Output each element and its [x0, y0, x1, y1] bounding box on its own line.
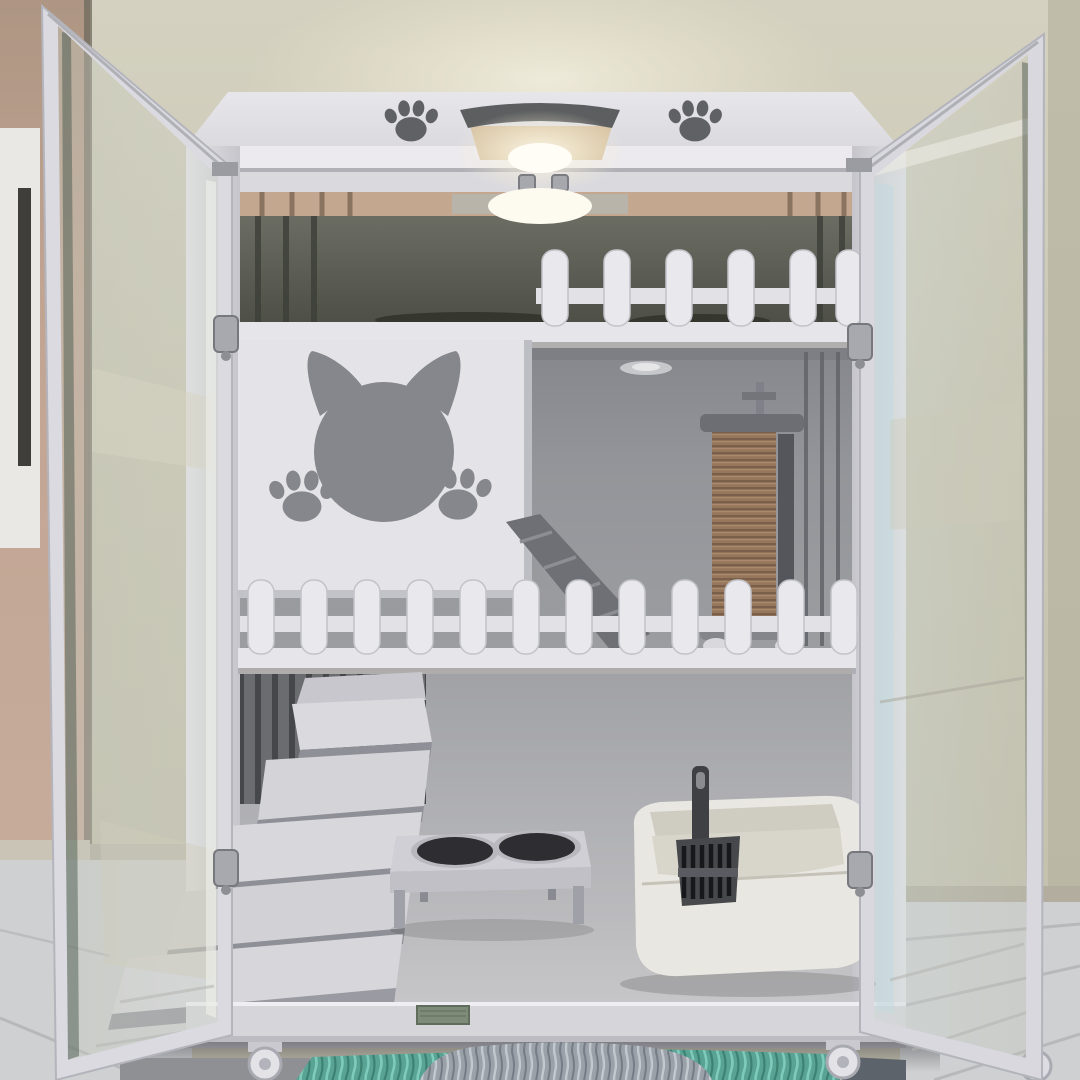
feeder-leg [394, 890, 405, 928]
hinge-pin [855, 887, 865, 897]
bowl-left [417, 837, 493, 865]
panel-edge-shade [524, 340, 532, 598]
feeder-leg [573, 886, 584, 924]
panel-bottom-shade [238, 590, 532, 598]
hinge-pin [855, 359, 865, 369]
level-top [238, 188, 862, 348]
level-middle [238, 340, 858, 674]
right-door-glass [874, 56, 1028, 1058]
top-shelf [238, 322, 856, 342]
hinge [214, 850, 238, 886]
hinge [214, 316, 238, 352]
feeder-shadow [390, 919, 594, 941]
cabinet-top [186, 92, 898, 194]
glass-streak-cyan [876, 182, 894, 1014]
cabinet-base [186, 1002, 906, 1048]
scoop-band [678, 868, 738, 877]
glass-reflection [890, 400, 1020, 530]
photo-cat-cabinet [0, 0, 1080, 1080]
top-pivot-bracket [212, 162, 238, 176]
scoop-handle-hole [696, 772, 705, 789]
fence-rail [240, 616, 858, 632]
glass-streak [206, 180, 216, 1018]
hinge-pin [221, 351, 231, 361]
top-lamp [454, 103, 626, 194]
shelf-shadow [238, 668, 856, 674]
hinge [848, 852, 872, 888]
scene-canvas [0, 0, 1080, 1080]
cat-panel [238, 340, 532, 598]
ceiling-light-core [632, 363, 660, 371]
middle-shelf [238, 648, 856, 668]
lamp-core [508, 143, 572, 173]
hinge [848, 324, 872, 360]
stair-tread [292, 698, 432, 750]
caster-hub [837, 1056, 849, 1068]
caster-hub [259, 1058, 271, 1070]
catch-right [552, 175, 568, 191]
green-label [417, 1006, 469, 1024]
left-door [42, 6, 238, 1080]
right-door [846, 34, 1044, 1080]
litter-shadow [620, 971, 876, 997]
right-wall-corner [1048, 0, 1080, 905]
top-pivot-bracket [846, 158, 872, 172]
post-top-bracket [700, 414, 804, 432]
base-top-edge [186, 1002, 906, 1006]
hinge-pin [221, 885, 231, 895]
bowl-right [499, 833, 575, 861]
interior-light-glow [488, 188, 592, 224]
feeder-stand [390, 830, 594, 941]
jamb-slot [18, 188, 31, 466]
post-hanger-bar [742, 392, 776, 400]
